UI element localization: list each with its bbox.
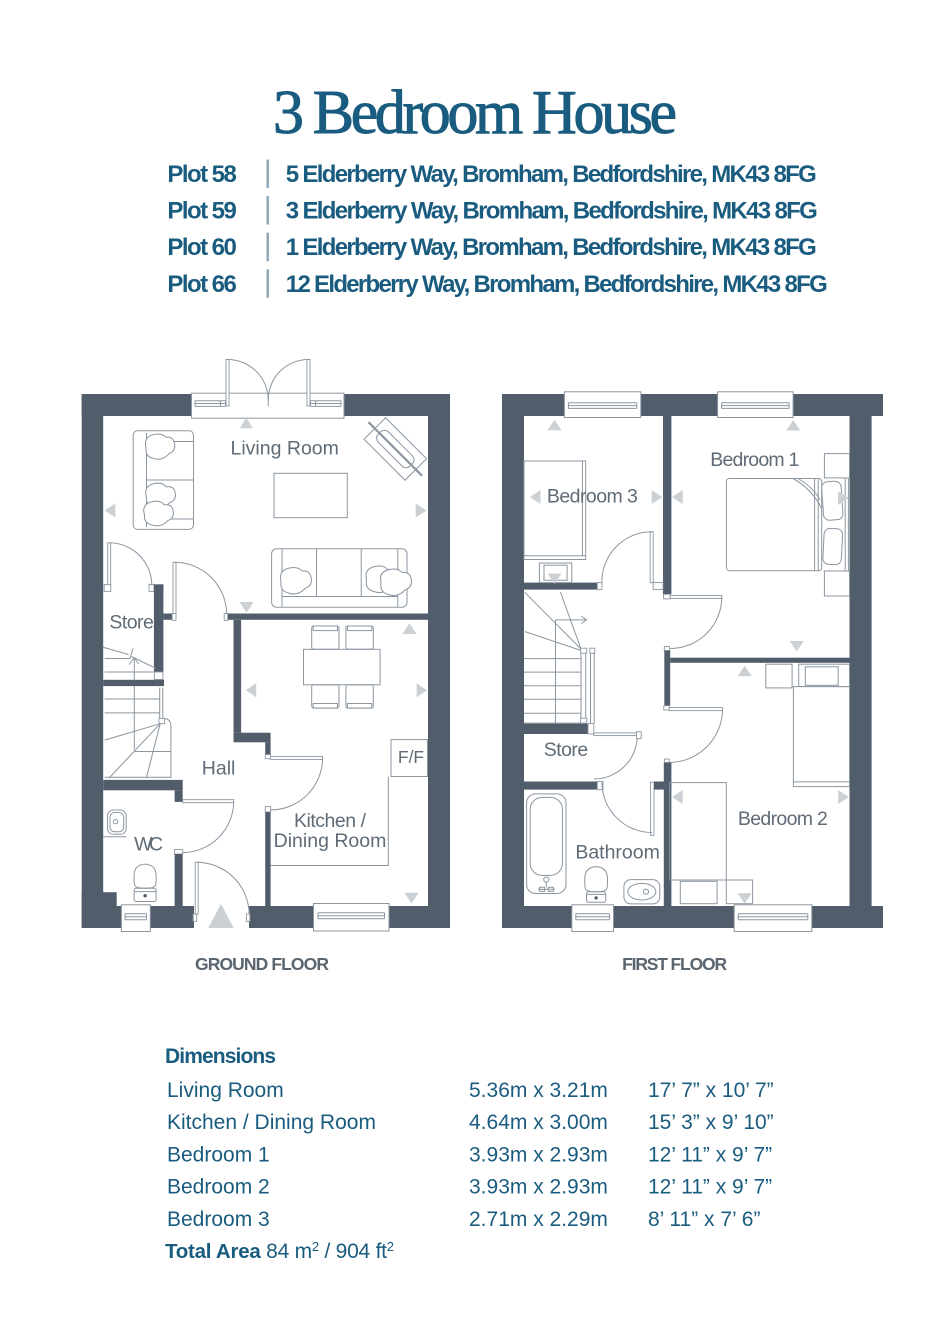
svg-text:Kitchen / Dining Room: Kitchen / Dining Room — [167, 1111, 376, 1134]
svg-text:5.36m x 3.21m: 5.36m x 3.21m — [469, 1079, 608, 1102]
svg-text:Store: Store — [544, 739, 589, 761]
svg-text:12’ 11” x 9’ 7”: 12’ 11” x 9’ 7” — [648, 1176, 772, 1199]
svg-text:Bedroom 1: Bedroom 1 — [710, 449, 799, 471]
svg-text:Bedroom 3: Bedroom 3 — [167, 1208, 270, 1231]
svg-text:Living Room: Living Room — [231, 438, 339, 460]
svg-text:Kitchen /: Kitchen / — [294, 810, 367, 832]
svg-text:12’ 11” x 9’ 7”: 12’ 11” x 9’ 7” — [648, 1143, 772, 1166]
svg-text:WC: WC — [134, 834, 163, 856]
svg-text:5 Elderberry Way, Bromham, Bed: 5 Elderberry Way, Bromham, Bedfordshire,… — [286, 161, 817, 188]
svg-text:GROUND FLOOR: GROUND FLOOR — [195, 954, 329, 974]
svg-text:Plot 66: Plot 66 — [167, 271, 236, 298]
svg-text:15’ 3” x 9’ 10”: 15’ 3” x 9’ 10” — [648, 1111, 774, 1134]
svg-text:3 Bedroom House: 3 Bedroom House — [273, 79, 677, 147]
svg-text:Bedroom 2: Bedroom 2 — [738, 808, 828, 830]
svg-text:Dining Room: Dining Room — [274, 830, 387, 852]
svg-text:Hall: Hall — [202, 758, 236, 780]
svg-text:Plot 60: Plot 60 — [167, 234, 236, 261]
svg-text:Total Area 84 m2 / 904 ft2: Total Area 84 m2 / 904 ft2 — [165, 1239, 394, 1263]
svg-text:Bedroom 1: Bedroom 1 — [167, 1143, 270, 1166]
svg-text:FIRST FLOOR: FIRST FLOOR — [622, 954, 727, 974]
svg-text:3.93m x 2.93m: 3.93m x 2.93m — [469, 1143, 608, 1166]
svg-text:F/F: F/F — [398, 747, 424, 767]
svg-text:3 Elderberry Way, Bromham, Bed: 3 Elderberry Way, Bromham, Bedfordshire,… — [286, 198, 818, 225]
svg-text:Bedroom 3: Bedroom 3 — [547, 486, 638, 508]
svg-text:Bedroom 2: Bedroom 2 — [167, 1176, 270, 1199]
svg-text:4.64m x 3.00m: 4.64m x 3.00m — [469, 1111, 608, 1134]
svg-text:Plot 59: Plot 59 — [167, 198, 236, 225]
svg-text:Plot 58: Plot 58 — [167, 161, 236, 188]
svg-text:Dimensions: Dimensions — [165, 1045, 276, 1068]
svg-text:Bathroom: Bathroom — [575, 842, 660, 864]
svg-text:2.71m x 2.29m: 2.71m x 2.29m — [469, 1208, 608, 1231]
svg-text:3.93m x 2.93m: 3.93m x 2.93m — [469, 1176, 608, 1199]
svg-text:8’ 11” x 7’ 6”: 8’ 11” x 7’ 6” — [648, 1208, 760, 1231]
svg-text:1 Elderberry Way, Bromham, Bed: 1 Elderberry Way, Bromham, Bedfordshire,… — [286, 234, 817, 261]
svg-text:12 Elderberry Way, Bromham, Be: 12 Elderberry Way, Bromham, Bedfordshire… — [286, 271, 828, 298]
svg-text:Store: Store — [109, 612, 154, 634]
svg-text:17’ 7” x 10’ 7”: 17’ 7” x 10’ 7” — [648, 1079, 774, 1102]
svg-text:Living Room: Living Room — [167, 1079, 284, 1102]
